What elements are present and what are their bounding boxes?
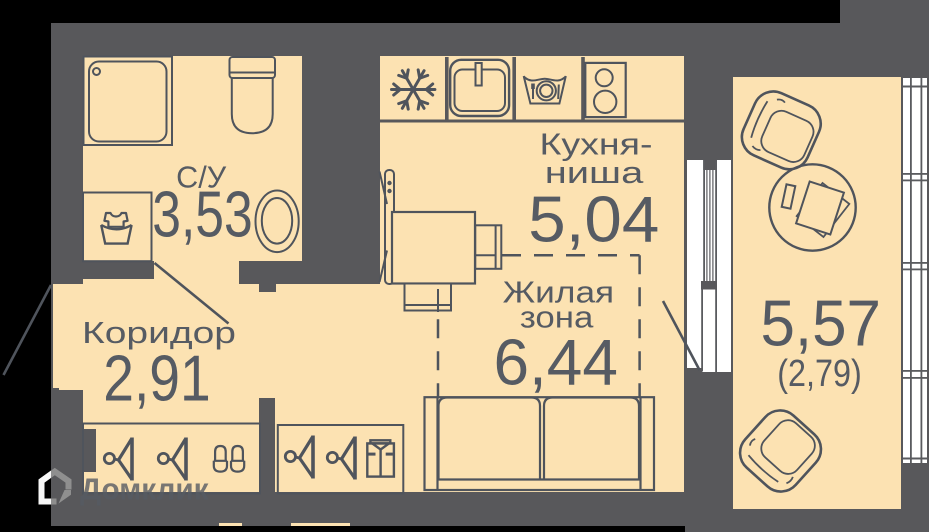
- svg-text:2,91: 2,91: [103, 341, 211, 414]
- svg-text:Домклик: Домклик: [80, 473, 209, 507]
- svg-text:6,44: 6,44: [493, 326, 618, 399]
- svg-text:3,53: 3,53: [152, 178, 253, 251]
- svg-text:5,04: 5,04: [528, 183, 659, 256]
- svg-text:(2,79): (2,79): [777, 353, 862, 395]
- svg-text:5,57: 5,57: [760, 287, 881, 360]
